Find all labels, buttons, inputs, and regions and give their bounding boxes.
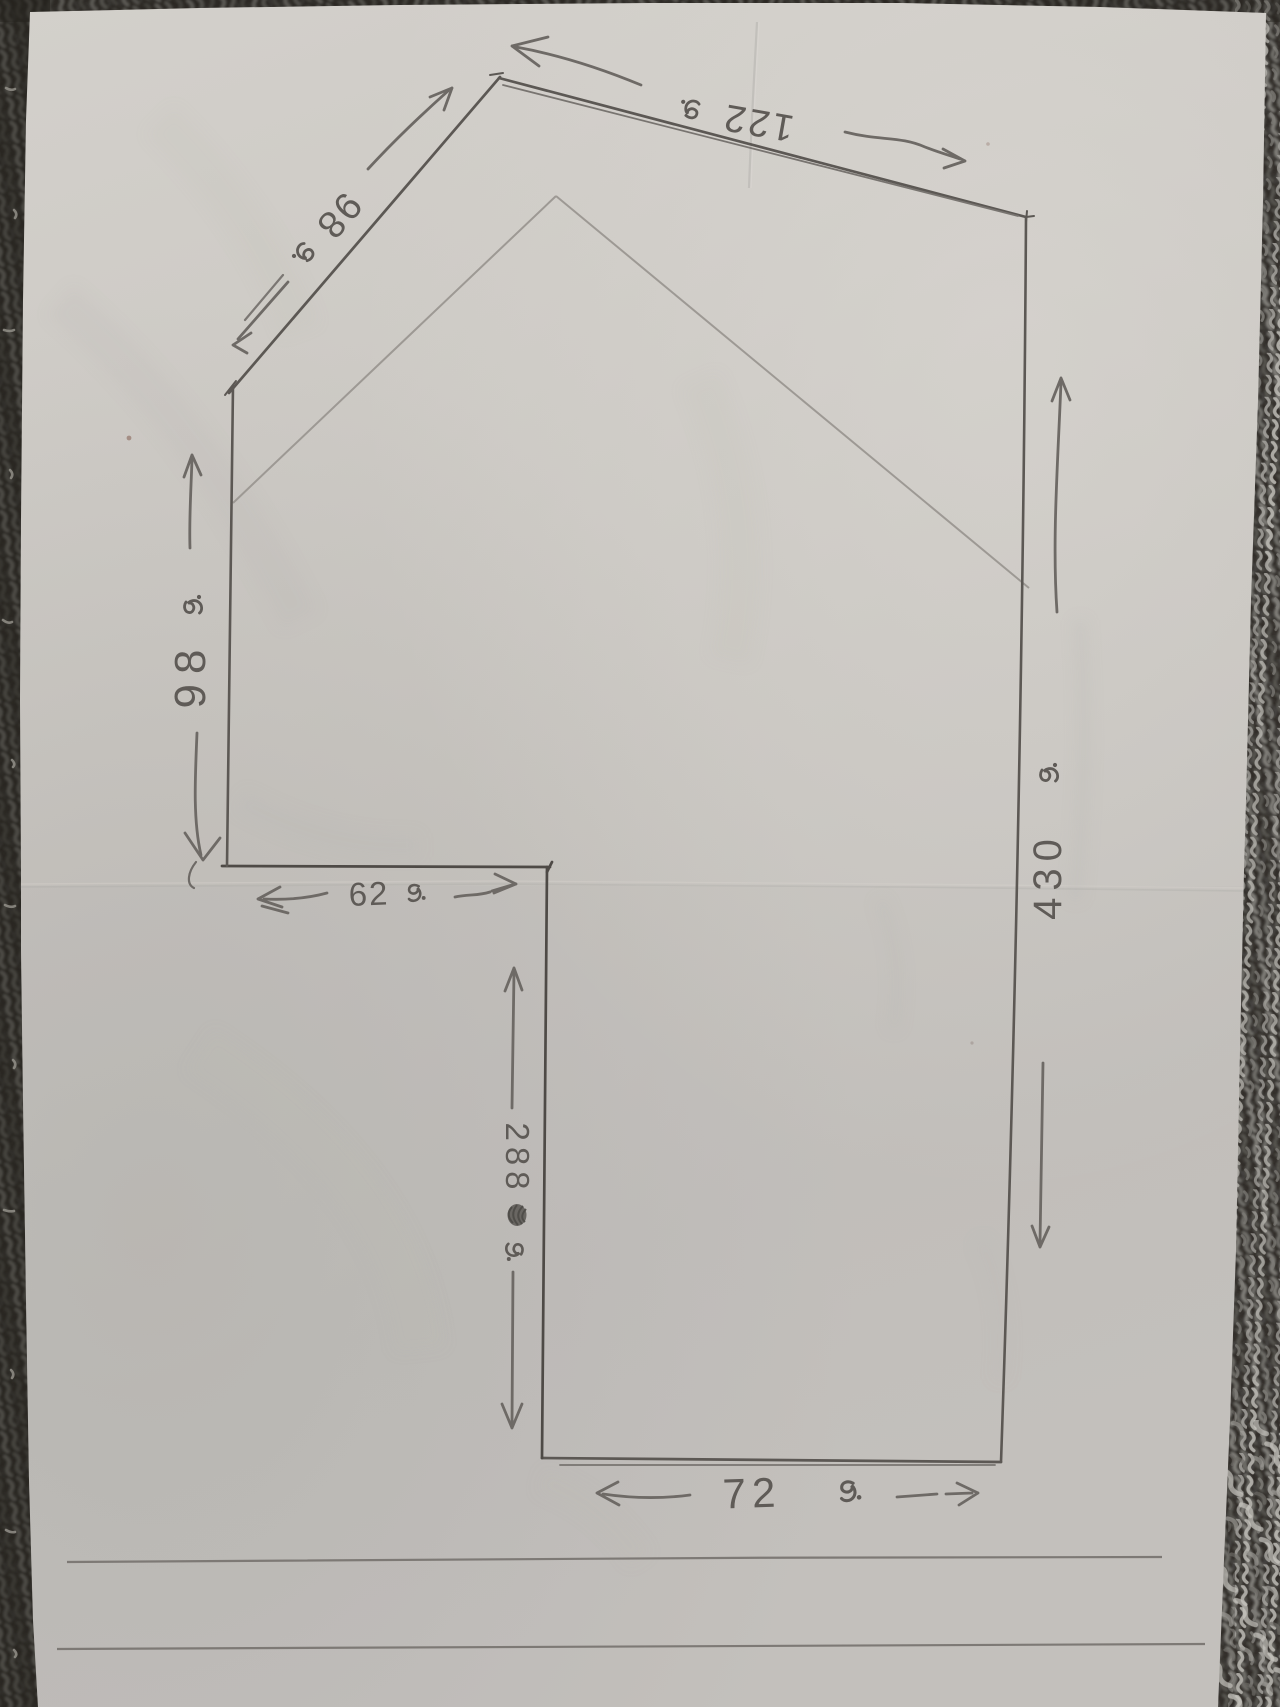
- svg-text:72: 72: [722, 1468, 782, 1517]
- svg-text:62: 62: [348, 874, 390, 912]
- svg-text:98: 98: [166, 640, 215, 709]
- svg-text:288: 288: [499, 1122, 536, 1195]
- svg-text:430: 430: [1026, 832, 1070, 920]
